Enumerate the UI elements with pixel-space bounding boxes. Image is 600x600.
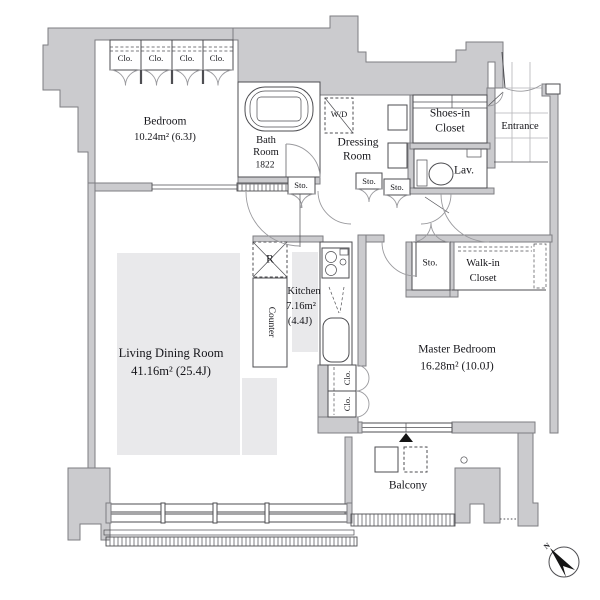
wall-sto-bottom	[406, 290, 454, 297]
wall-kitchen-master	[358, 235, 366, 366]
bath-size-label: 1822	[256, 161, 275, 171]
bedroom-area-label: 10.24m² (6.3J)	[134, 133, 196, 144]
lavatory-label: Lav.	[454, 165, 474, 177]
balcony-label: Balcony	[389, 480, 427, 492]
living-label: Living Dining Room	[119, 347, 224, 360]
storage-label-2: Sto.	[362, 177, 375, 186]
balcony-sill	[104, 530, 354, 535]
wall-left	[88, 183, 95, 468]
bath-room	[238, 82, 320, 177]
wall-balcony-right	[518, 433, 538, 526]
closet-label-2: Clo.	[149, 54, 163, 63]
living-area-label: 41.16m² (25.4J)	[131, 365, 211, 378]
wall-master-bottom	[452, 422, 535, 433]
wall-walkin-stub	[450, 290, 458, 297]
wall-hatched	[237, 183, 290, 191]
dressing-label-1: Dressing	[338, 137, 379, 149]
vanity-unit-2	[388, 143, 407, 168]
storage-label-3: Sto.	[390, 183, 403, 192]
balcony-equipment	[375, 447, 398, 472]
balcony-edge-hatch	[106, 537, 357, 546]
bedroom-label: Bedroom	[144, 116, 187, 128]
shoes-label-1: Shoes-in	[430, 108, 470, 120]
dressing-label-2: Room	[343, 151, 371, 163]
shoes-label-2: Closet	[435, 123, 464, 135]
entrance-label: Entrance	[501, 122, 538, 133]
master-window	[358, 422, 452, 433]
closet-door-pivots	[141, 70, 203, 84]
closet-label-1: Clo.	[118, 54, 132, 63]
wall-kitchen-top	[253, 236, 323, 242]
walkin-label-2: Closet	[470, 274, 497, 285]
master-area-label: 16.28m² (10.0J)	[420, 361, 493, 373]
balcony-bottom-hatch	[351, 514, 455, 526]
wall-shoes-lav	[410, 143, 490, 149]
living-window	[104, 503, 357, 546]
wall-sto-left	[406, 242, 412, 292]
lav-door-leaf	[425, 197, 449, 213]
closet-label-4: Clo.	[210, 54, 224, 63]
master-closet-label-2: Clo.	[343, 397, 352, 411]
master-closet-label-1: Clo.	[343, 371, 352, 385]
dressing-door-swing	[318, 191, 351, 224]
balcony-drain	[461, 457, 467, 463]
balcony-access-marker	[399, 433, 413, 442]
wall-balcony-pillar	[455, 468, 500, 523]
wall-lav-bottom	[406, 188, 494, 194]
bath-label-1: Bath	[256, 136, 276, 147]
bath-label-2: Room	[253, 148, 279, 159]
wall-closet-left	[318, 365, 328, 417]
floor-plan: Bedroom 10.24m² (6.3J) Clo. Clo. Clo. Cl…	[0, 0, 600, 600]
kitchen-tatami-label: (4.4J)	[288, 317, 312, 328]
kitchen-label: Kitchen	[287, 287, 320, 298]
closet-label-3: Clo.	[180, 54, 194, 63]
lav-door-swing	[421, 194, 451, 224]
bedroom-closets	[110, 40, 233, 86]
compass	[549, 547, 579, 577]
kitchen-unit	[320, 242, 352, 365]
bedroom-sliding-door	[152, 183, 237, 191]
counter-label: Counter	[265, 307, 275, 338]
refrigerator-label: R	[266, 254, 274, 266]
vanity-unit	[388, 105, 407, 130]
wall-bedroom-bottom	[95, 183, 152, 191]
master-label: Master Bedroom	[418, 344, 496, 356]
lavatory	[414, 149, 487, 188]
storage-label-4: Sto.	[422, 259, 437, 269]
wall-sto-walkin	[450, 242, 454, 290]
wall-entrance-left	[487, 88, 495, 168]
kitchen-area-label: 7.16m²	[286, 302, 316, 313]
wall-pillar-bottom-left	[68, 468, 110, 540]
meter-box	[546, 84, 560, 94]
balcony-equipment-dashed	[404, 447, 427, 472]
walkin-label-1: Walk-in	[466, 259, 500, 270]
washer-dryer-label: W/D	[331, 110, 348, 119]
living-floor-shade-2	[242, 378, 277, 455]
wall-below-closets	[318, 417, 358, 433]
storage-label-1: Sto.	[294, 181, 307, 190]
